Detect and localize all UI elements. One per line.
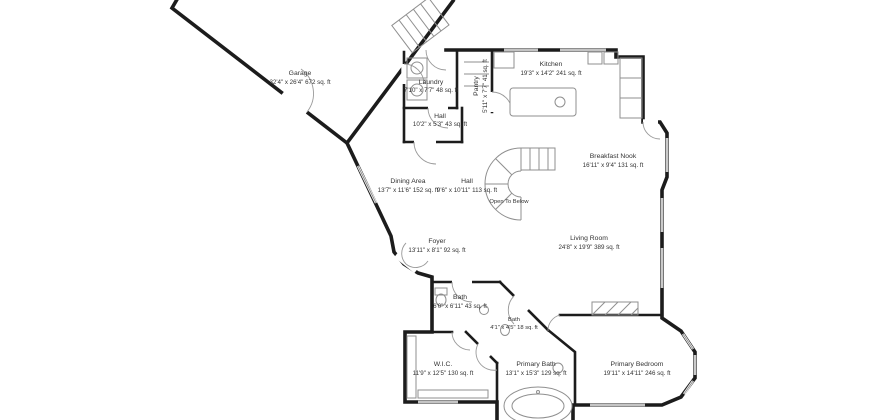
svg-text:32'4" x 26'4" 672 sq. ft: 32'4" x 26'4" 672 sq. ft xyxy=(269,79,330,86)
svg-text:13'11" x 8'1" 92 sq. ft: 13'11" x 8'1" 92 sq. ft xyxy=(408,247,465,254)
room-labels: Garage 32'4" x 26'4" 672 sq. ft Laundry … xyxy=(269,59,670,377)
door-arcs xyxy=(301,50,660,370)
room-label-dining-area: Dining Area 13'7" x 11'6" 152 sq. ft xyxy=(378,178,439,194)
bathtub-icon xyxy=(504,387,572,420)
svg-text:11'9" x 12'5" 130 sq. ft: 11'9" x 12'5" 130 sq. ft xyxy=(413,370,474,377)
room-label-bath-small: Bath 4'1" x 4'5" 18 sq. ft xyxy=(490,317,538,331)
svg-text:10'2" x 5'3" 43 sq. ft: 10'2" x 5'3" 43 sq. ft xyxy=(413,121,468,128)
room-label-foyer: Foyer 13'11" x 8'1" 92 sq. ft xyxy=(408,238,465,254)
room-label-hall-upper: Hall 10'2" x 5'3" 43 sq. ft xyxy=(413,113,468,128)
svg-text:Open To Below: Open To Below xyxy=(489,199,529,205)
window xyxy=(683,334,693,349)
window xyxy=(358,166,376,203)
fireplace-icon xyxy=(592,302,638,315)
room-label-bath: Bath 6'0" x 6'11" 43 sq. ft xyxy=(433,294,487,310)
svg-text:Bath: Bath xyxy=(508,317,520,323)
svg-text:Laundry: Laundry xyxy=(419,79,444,86)
svg-text:19'11" x 14'11" 246 sq. ft: 19'11" x 14'11" 246 sq. ft xyxy=(603,370,670,377)
kitchen-island-icon xyxy=(510,88,576,116)
svg-text:5'11" x 7'7" 41 sq. ft: 5'11" x 7'7" 41 sq. ft xyxy=(482,59,489,113)
room-label-garage: Garage 32'4" x 26'4" 672 sq. ft xyxy=(269,70,330,86)
svg-text:9'6" x 10'11" 113 sq. ft: 9'6" x 10'11" 113 sq. ft xyxy=(437,187,497,194)
staircase-curved xyxy=(485,148,555,220)
room-label-living-room: Living Room 24'8" x 19'9" 389 sq. ft xyxy=(558,235,619,251)
svg-text:Foyer: Foyer xyxy=(428,238,446,245)
window xyxy=(684,381,693,394)
svg-text:Hall: Hall xyxy=(434,113,446,120)
room-label-breakfast-nook: Breakfast Nook 16'11" x 9'4" 131 sq. ft xyxy=(583,153,644,169)
svg-text:4'1" x 4'5" 18 sq. ft: 4'1" x 4'5" 18 sq. ft xyxy=(490,325,538,331)
svg-text:13'1" x 15'3" 129 sq. ft: 13'1" x 15'3" 129 sq. ft xyxy=(505,370,566,377)
exterior-walls xyxy=(172,0,695,420)
svg-text:Breakfast Nook: Breakfast Nook xyxy=(590,153,637,160)
svg-text:Kitchen: Kitchen xyxy=(540,61,563,68)
svg-text:Primary Bath: Primary Bath xyxy=(516,361,556,368)
svg-text:Primary Bedroom: Primary Bedroom xyxy=(611,361,664,368)
room-label-kitchen: Kitchen 19'3" x 14'2" 241 sq. ft xyxy=(520,61,581,77)
svg-text:16'11" x 9'4" 131 sq. ft: 16'11" x 9'4" 131 sq. ft xyxy=(583,162,644,169)
svg-text:19'3" x 14'2" 241 sq. ft: 19'3" x 14'2" 241 sq. ft xyxy=(520,70,581,77)
svg-text:Pantry: Pantry xyxy=(473,76,480,96)
svg-text:6'0" x 6'11" 43 sq. ft: 6'0" x 6'11" 43 sq. ft xyxy=(433,303,487,310)
svg-text:W.I.C.: W.I.C. xyxy=(434,361,453,368)
door-openings xyxy=(283,64,658,356)
svg-text:13'7" x 11'6" 152 sq. ft: 13'7" x 11'6" 152 sq. ft xyxy=(378,187,439,194)
svg-text:Dining Area: Dining Area xyxy=(390,178,425,185)
svg-text:Hall: Hall xyxy=(461,178,473,185)
svg-text:24'8" x 19'9" 389 sq. ft: 24'8" x 19'9" 389 sq. ft xyxy=(558,244,619,251)
svg-text:Living Room: Living Room xyxy=(570,235,608,242)
room-label-open-to-below: Open To Below xyxy=(489,199,529,205)
svg-text:7'10" x 7'7" 48 sq. ft: 7'10" x 7'7" 48 sq. ft xyxy=(404,87,459,94)
svg-text:Bath: Bath xyxy=(453,294,467,301)
floor-plan-drawing: Garage 32'4" x 26'4" 672 sq. ft Laundry … xyxy=(0,0,870,420)
room-label-hall-center: Hall 9'6" x 10'11" 113 sq. ft xyxy=(437,178,497,194)
room-label-laundry: Laundry 7'10" x 7'7" 48 sq. ft xyxy=(404,79,459,94)
room-label-wic: W.I.C. 11'9" x 12'5" 130 sq. ft xyxy=(413,361,474,377)
floor-plan-page: Garage 32'4" x 26'4" 672 sq. ft Laundry … xyxy=(0,0,870,420)
svg-text:Garage: Garage xyxy=(289,70,312,77)
room-label-primary-bedroom: Primary Bedroom 19'11" x 14'11" 246 sq. … xyxy=(603,361,670,377)
